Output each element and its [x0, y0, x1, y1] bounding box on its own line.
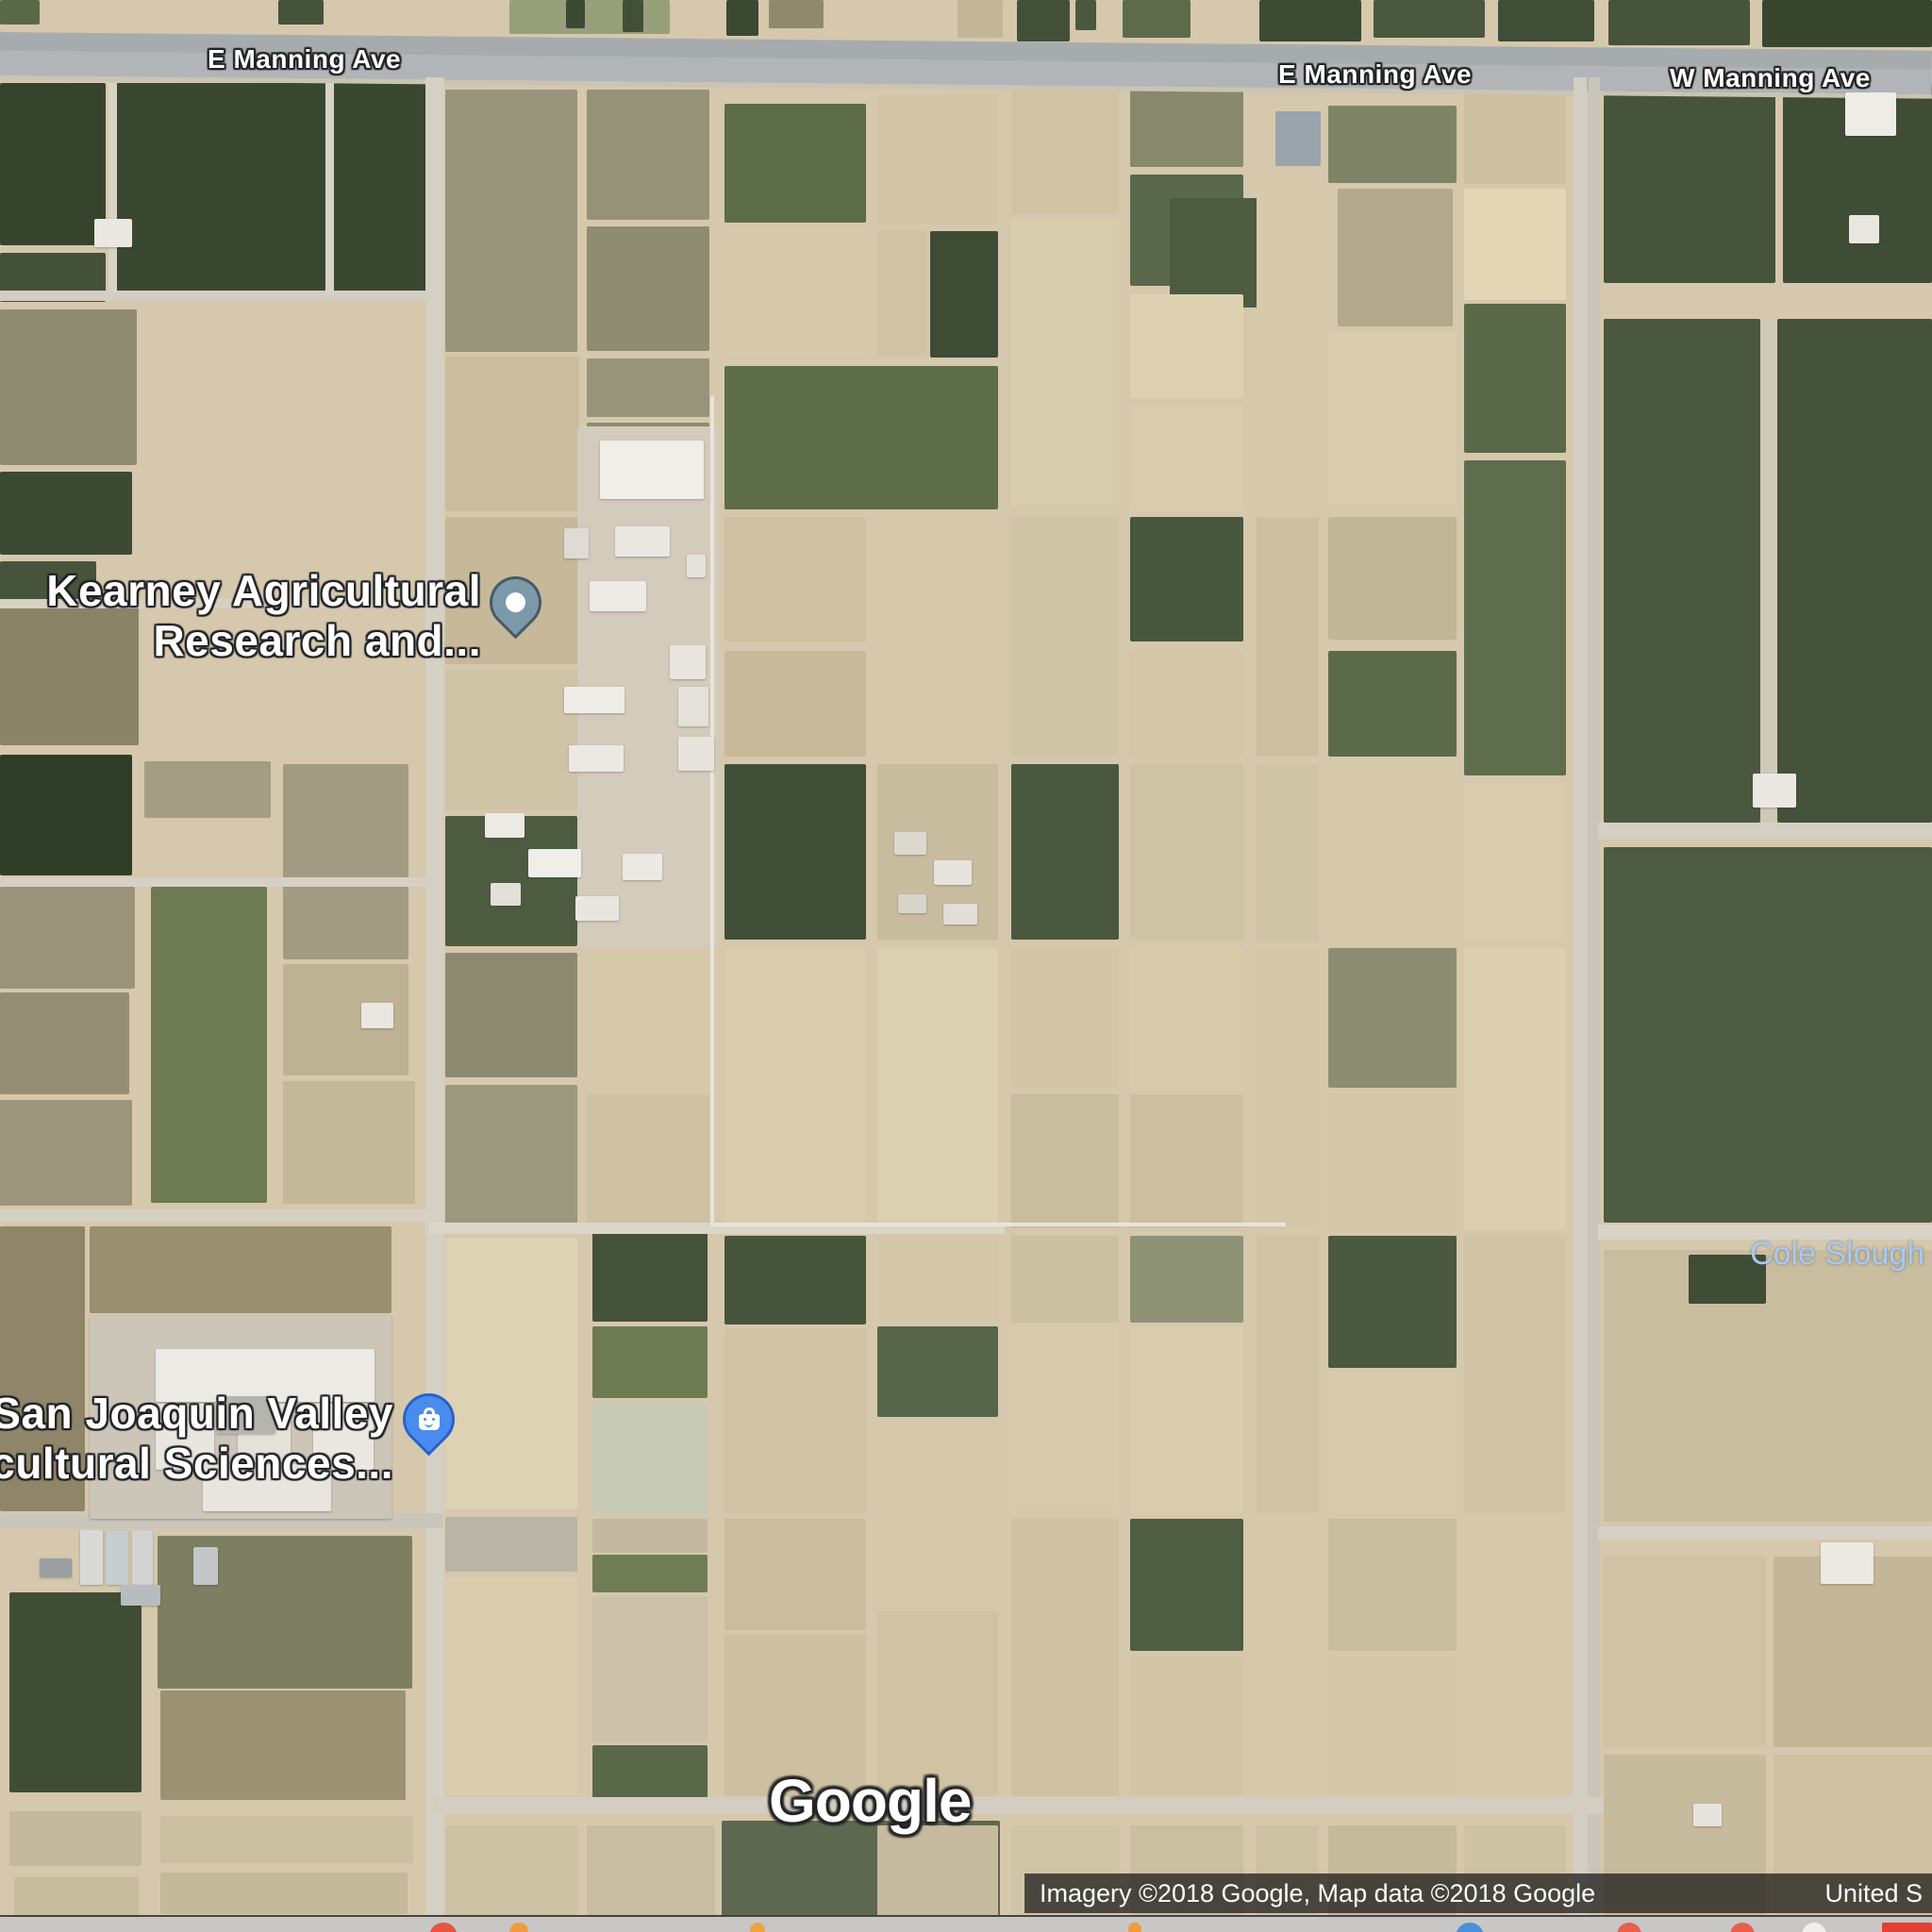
bottom-ui-strip: [0, 1915, 1932, 1932]
bottom-icon-fragment: [1730, 1923, 1755, 1932]
place-label-san-joaquin-line1: San Joaquin Valley: [0, 1389, 393, 1439]
shopping-pin-icon[interactable]: [392, 1383, 466, 1457]
bottom-icon-fragment: [750, 1923, 765, 1932]
pin-inner-dot: [502, 589, 530, 617]
shopping-bag-icon: [406, 1396, 452, 1442]
map-canvas[interactable]: E Manning Ave E Manning Ave W Manning Av…: [0, 0, 1932, 1932]
bottom-icon-fragment: [1882, 1923, 1932, 1932]
place-label-kearney-line1: Kearney Agricultural: [46, 566, 481, 616]
place-label-kearney[interactable]: Kearney Agricultural Research and...: [46, 566, 481, 666]
map-labels-layer: E Manning Ave E Manning Ave W Manning Av…: [0, 0, 1932, 1932]
road-label-w-manning: W Manning Ave: [1670, 63, 1871, 93]
bottom-icon-fragment: [1128, 1923, 1141, 1932]
bottom-icon-fragment: [429, 1923, 458, 1932]
place-label-san-joaquin[interactable]: San Joaquin Valley icultural Sciences...: [0, 1389, 393, 1489]
place-label-kearney-line2: Research and...: [46, 616, 481, 666]
road-label-e-manning-1: E Manning Ave: [208, 44, 401, 75]
bottom-icon-fragment: [1802, 1923, 1826, 1932]
bottom-icon-fragment: [1456, 1923, 1484, 1932]
attribution-imagery-text: Imagery ©2018 Google, Map data ©2018 Goo…: [1040, 1879, 1595, 1908]
bottom-icon-fragment: [509, 1923, 528, 1932]
generic-place-pin-icon[interactable]: [479, 566, 553, 640]
google-logo[interactable]: Google: [769, 1766, 971, 1836]
water-label-cole-slough: Cole Slough: [1750, 1236, 1924, 1273]
attribution-region-text: United S: [1824, 1879, 1923, 1908]
bottom-icon-fragment: [1617, 1923, 1641, 1932]
road-label-e-manning-2: E Manning Ave: [1278, 59, 1472, 90]
place-label-san-joaquin-line2: icultural Sciences...: [0, 1439, 393, 1489]
attribution-bar: Imagery ©2018 Google, Map data ©2018 Goo…: [1024, 1874, 1932, 1913]
